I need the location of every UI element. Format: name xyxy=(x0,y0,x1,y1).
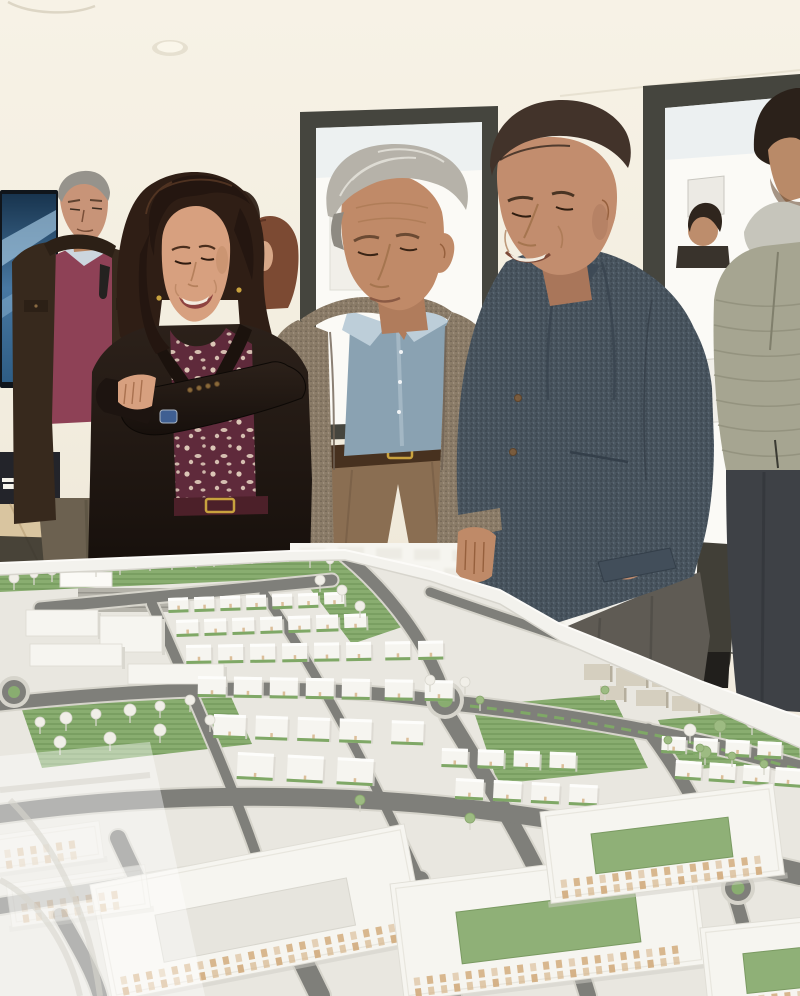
apt-window xyxy=(439,974,446,983)
apt-window xyxy=(467,982,474,991)
ceiling-light-inner xyxy=(157,42,183,53)
villa-door xyxy=(354,624,357,628)
villa-roof xyxy=(234,677,262,680)
villa-garden xyxy=(425,698,453,701)
villa-door xyxy=(214,629,217,633)
apt-window xyxy=(531,974,538,983)
villa-door xyxy=(228,732,231,736)
apt-window xyxy=(691,874,698,883)
villa-door xyxy=(355,693,358,697)
tree xyxy=(315,575,325,585)
villa-garden xyxy=(306,696,334,699)
villa-door xyxy=(281,602,284,606)
villa-door xyxy=(307,601,310,605)
apt-window xyxy=(741,857,748,866)
cheek-shade xyxy=(592,204,608,240)
apt-window xyxy=(573,878,580,887)
apt-window xyxy=(427,976,434,985)
apt-window xyxy=(621,963,628,972)
apt-window xyxy=(530,963,537,972)
villa-garden xyxy=(186,661,211,664)
apt-window xyxy=(660,958,667,967)
village-building xyxy=(584,664,610,680)
villa-door xyxy=(177,606,180,610)
apt-window xyxy=(586,876,593,885)
villa-door xyxy=(453,760,456,764)
civic-building xyxy=(26,610,98,636)
apt-window xyxy=(557,971,564,980)
villa-door xyxy=(326,625,329,629)
villa-garden xyxy=(342,697,370,700)
tree xyxy=(104,732,116,744)
apt-window xyxy=(784,992,791,996)
villa-door xyxy=(687,773,690,777)
villa-door xyxy=(438,694,441,698)
button xyxy=(399,350,403,354)
apt-window xyxy=(428,986,435,995)
trouser-crease xyxy=(86,500,88,566)
villa-door xyxy=(430,653,433,657)
villa-roof xyxy=(250,643,275,646)
villa-door xyxy=(721,775,724,779)
apt-window xyxy=(568,958,575,967)
apt-window xyxy=(583,967,590,976)
sleeve-button xyxy=(215,382,220,387)
pocket-button xyxy=(34,304,37,307)
villa-door xyxy=(354,736,357,740)
village-building xyxy=(636,690,666,706)
villa-door xyxy=(736,750,739,754)
earring-right xyxy=(236,287,241,292)
earring-left xyxy=(156,295,161,300)
apt-window xyxy=(588,887,595,896)
button xyxy=(398,380,402,384)
apt-window xyxy=(704,873,711,882)
apt-window xyxy=(638,870,645,879)
villa-roof xyxy=(385,679,413,682)
villa-door xyxy=(319,692,322,696)
villa-garden xyxy=(418,657,443,660)
apt-window xyxy=(415,988,422,996)
apt-window xyxy=(678,876,685,885)
villa-door xyxy=(198,657,201,661)
canopy-structure xyxy=(60,572,112,587)
villa-door xyxy=(358,654,361,658)
hand xyxy=(118,375,156,410)
apt-window xyxy=(465,971,472,980)
villa-roof xyxy=(342,679,370,682)
villa-door xyxy=(254,773,257,777)
villa-door xyxy=(755,778,758,782)
tree xyxy=(696,744,704,752)
apt-window xyxy=(665,878,672,887)
tree xyxy=(35,717,45,727)
villa-door xyxy=(544,797,547,801)
apt-window xyxy=(600,885,607,894)
villa-door xyxy=(312,734,315,738)
villa-garden xyxy=(234,695,262,698)
apt-window xyxy=(544,972,551,981)
apt-window xyxy=(664,867,671,876)
apt-window xyxy=(491,968,498,977)
tree xyxy=(760,760,768,768)
apt-window xyxy=(492,979,499,988)
tree xyxy=(154,724,166,736)
tree xyxy=(355,795,365,805)
apt-window xyxy=(651,868,658,877)
villa-roof xyxy=(306,678,334,681)
roundabout-island xyxy=(8,686,20,698)
villa-roof xyxy=(270,677,298,680)
face-shade xyxy=(216,246,228,274)
villa-door xyxy=(186,630,189,634)
tree xyxy=(460,677,470,687)
tree xyxy=(664,736,672,744)
apt-window xyxy=(702,862,709,871)
villa-door xyxy=(262,656,265,660)
tree xyxy=(91,709,101,719)
civic-building xyxy=(30,644,122,666)
tree xyxy=(337,585,347,595)
villa-roof xyxy=(346,642,371,645)
blazer-button-2 xyxy=(510,449,517,456)
apt-window xyxy=(543,961,550,970)
apt-window xyxy=(518,975,525,984)
villa-door xyxy=(294,655,297,659)
sleeve-button xyxy=(197,386,202,391)
villa-door xyxy=(582,799,585,803)
tree xyxy=(465,813,475,823)
apt-window xyxy=(620,952,627,961)
apt-window xyxy=(570,969,577,978)
apt-window xyxy=(742,868,749,877)
villa-door xyxy=(304,775,307,779)
scene-svg xyxy=(0,0,800,996)
villa-door xyxy=(255,603,258,607)
apt-window xyxy=(639,881,646,890)
villa-door xyxy=(354,778,357,782)
apt-window xyxy=(599,875,606,884)
village-shadow xyxy=(666,692,669,708)
civic-shadow xyxy=(122,647,125,669)
photo-scene: Indoor photo: a woman with long dark hai… xyxy=(0,0,800,996)
apt-window xyxy=(517,964,524,973)
villa-door xyxy=(506,795,509,799)
apt-window xyxy=(647,959,654,968)
hand xyxy=(456,527,496,582)
tree xyxy=(205,715,215,725)
apt-window xyxy=(594,955,601,964)
tree xyxy=(684,724,696,736)
tree xyxy=(185,695,195,705)
apt-window xyxy=(505,977,512,986)
villa-door xyxy=(230,656,233,660)
villa-roof xyxy=(186,645,211,648)
tree xyxy=(601,686,609,694)
tree xyxy=(60,712,72,724)
villa-door xyxy=(270,627,273,631)
apt-window xyxy=(646,949,653,958)
villa-roof xyxy=(282,643,307,646)
tree xyxy=(355,601,365,611)
apt-window xyxy=(556,960,563,969)
villa-door xyxy=(326,655,329,659)
villa-door xyxy=(787,780,790,784)
villa-door xyxy=(242,628,245,632)
villa-door xyxy=(525,763,528,767)
tree xyxy=(728,752,736,760)
tree xyxy=(155,701,165,711)
apt-window xyxy=(560,879,567,888)
apt-window xyxy=(581,956,588,965)
apt-window xyxy=(715,860,722,869)
apt-window xyxy=(613,884,620,893)
jeans-seam xyxy=(762,472,764,706)
apt-window xyxy=(607,953,614,962)
apt-window xyxy=(608,964,615,973)
villa-door xyxy=(398,693,401,697)
villa-garden xyxy=(385,697,413,700)
villa-roof xyxy=(198,676,226,679)
villa-roof xyxy=(418,641,443,644)
tree xyxy=(714,720,726,732)
civic-shadow xyxy=(162,619,165,655)
villa-door xyxy=(397,653,400,657)
apt-window xyxy=(659,947,666,956)
apt-window xyxy=(728,859,735,868)
apt-window xyxy=(596,966,603,975)
villa-door xyxy=(270,733,273,737)
apt-window xyxy=(755,866,762,875)
apt-window xyxy=(652,879,659,888)
villa-door xyxy=(229,604,232,608)
villa-garden xyxy=(270,695,298,698)
apt-window xyxy=(626,882,633,891)
villa-roof xyxy=(385,641,410,644)
villa-garden xyxy=(385,657,410,660)
apt-window xyxy=(673,956,680,965)
villa-garden xyxy=(346,658,371,661)
villa-door xyxy=(247,691,250,695)
apt-window xyxy=(633,950,640,959)
village-shadow xyxy=(610,666,613,682)
tree xyxy=(54,736,66,748)
tree xyxy=(124,704,136,716)
apt-window xyxy=(452,972,459,981)
villa-garden xyxy=(218,660,243,663)
villa-door xyxy=(468,793,471,797)
apt-window xyxy=(562,890,569,899)
blazer-button xyxy=(515,395,522,402)
jacket-left xyxy=(12,242,56,524)
apt-window xyxy=(717,871,724,880)
sleeve-button xyxy=(188,388,193,393)
village-shadow xyxy=(624,688,627,702)
apt-window xyxy=(689,863,696,872)
villa-roof xyxy=(314,642,339,645)
tree xyxy=(425,675,435,685)
wristwatch xyxy=(160,410,177,423)
villa-door xyxy=(406,738,409,742)
villa-garden xyxy=(250,659,275,662)
apt-window xyxy=(754,856,761,865)
shoulders xyxy=(676,246,730,268)
apt-window xyxy=(414,977,421,986)
villa-door xyxy=(298,626,301,630)
button xyxy=(397,410,401,414)
sleeve-button xyxy=(206,384,211,389)
villa-door xyxy=(211,690,214,694)
villa-door xyxy=(489,762,492,766)
villa-roof xyxy=(218,644,243,647)
villa-door xyxy=(283,691,286,695)
apt-window xyxy=(634,961,641,970)
villa-door xyxy=(561,764,564,768)
tree xyxy=(476,696,484,704)
apt-window xyxy=(504,966,511,975)
villa-door xyxy=(768,752,771,756)
apt-window xyxy=(441,985,448,994)
apt-window xyxy=(454,983,461,992)
apt-window xyxy=(478,969,485,978)
villa-door xyxy=(333,600,336,604)
villa-door xyxy=(672,747,675,751)
apt-window xyxy=(730,870,737,879)
villa-garden xyxy=(198,694,226,697)
apt-window xyxy=(612,873,619,882)
apt-window xyxy=(677,865,684,874)
apt-window xyxy=(672,945,679,954)
apt-window xyxy=(575,889,582,898)
villa-garden xyxy=(314,658,339,661)
villa-door xyxy=(203,605,206,609)
apt-window xyxy=(625,871,632,880)
villa-garden xyxy=(282,659,307,662)
apt-window xyxy=(479,980,486,989)
